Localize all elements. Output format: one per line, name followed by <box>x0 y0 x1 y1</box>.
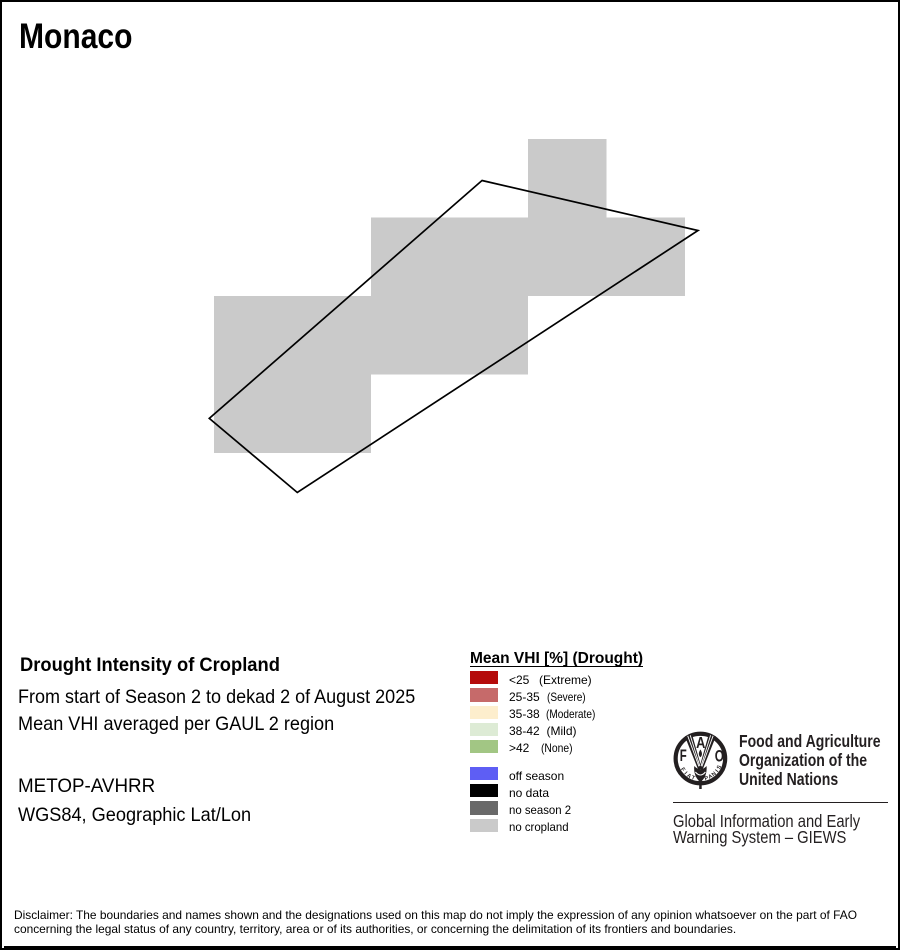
svg-text:F: F <box>680 747 687 765</box>
svg-text:A: A <box>696 735 705 752</box>
svg-text:O: O <box>715 748 724 766</box>
